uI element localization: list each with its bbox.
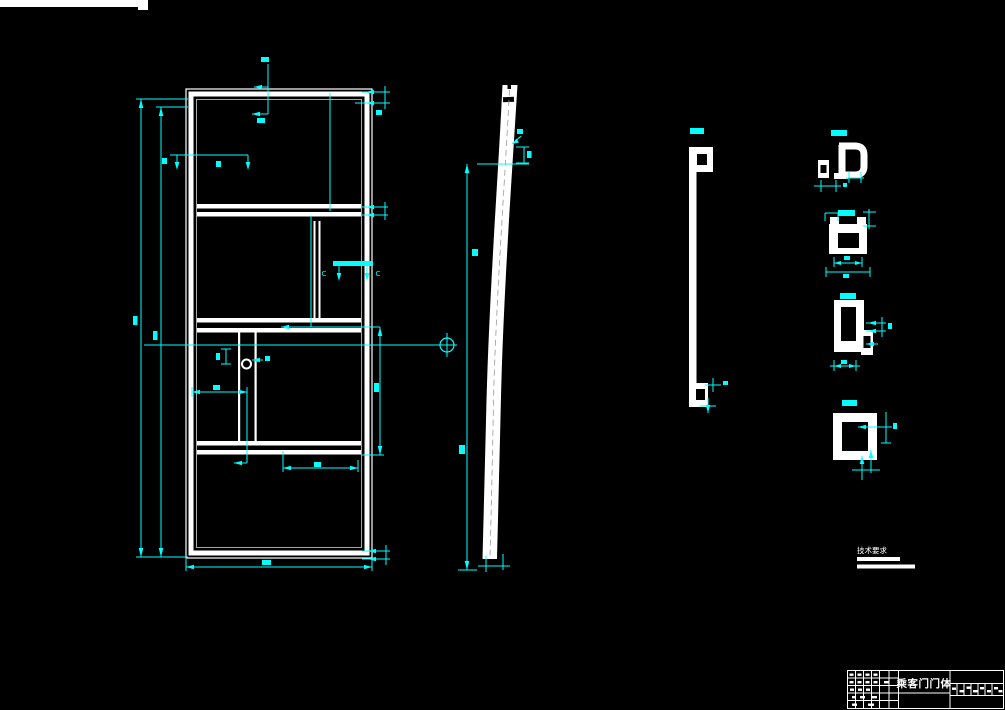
- section-letter-c-left: C: [322, 270, 327, 278]
- notes-line-2: [857, 565, 915, 569]
- detail1-label-mark: [831, 130, 847, 136]
- section-detail-1: [814, 130, 864, 192]
- title-block: 乘客门门体: [848, 671, 1004, 709]
- detail4-label-mark: [842, 400, 857, 406]
- mounting-hole: [242, 360, 251, 369]
- cad-canvas: C C: [0, 0, 1005, 710]
- drawing-svg: C C: [0, 0, 1005, 710]
- front-view-door-frame: C C: [133, 57, 457, 571]
- section-detail-4: [833, 400, 897, 480]
- section-detail-3: [830, 293, 892, 371]
- pillar-label-mark: [690, 128, 704, 134]
- section-letter-c-right: C: [376, 270, 381, 278]
- frame-border: [186, 89, 372, 558]
- side-profile-view: [458, 83, 532, 572]
- technical-notes: 技术要求: [857, 545, 915, 569]
- detail2-label-mark: [838, 210, 855, 216]
- notes-heading: 技术要求: [857, 545, 887, 555]
- detail3-label-mark: [840, 293, 856, 299]
- drawing-title: 乘客门门体: [896, 677, 952, 690]
- profile-top-notch: [508, 83, 512, 89]
- frame-cross-rails: [197, 204, 361, 455]
- pillar-strip-view: [689, 128, 728, 413]
- front-view-dimensions: C C: [133, 57, 457, 571]
- section-detail-2: [825, 209, 876, 278]
- profile-slot: [503, 97, 514, 103]
- profile-strip: [483, 85, 518, 559]
- notes-line-1: [857, 557, 900, 561]
